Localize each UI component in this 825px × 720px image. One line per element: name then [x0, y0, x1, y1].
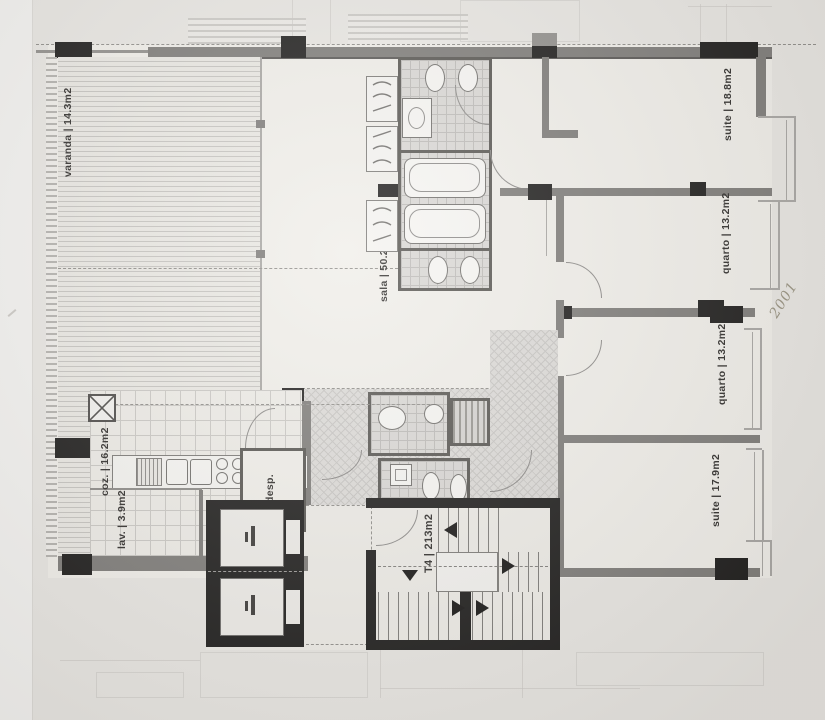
elevator-block [206, 500, 304, 647]
stair-direction-arrow [452, 600, 465, 616]
window-frame [758, 200, 796, 202]
wall-segment [756, 57, 766, 117]
stair-direction-arrow [402, 570, 418, 581]
wall-segment [542, 57, 549, 137]
glazing-line [260, 57, 262, 438]
sink-basin [166, 459, 188, 485]
toilet [422, 472, 440, 500]
stair-wall [550, 498, 560, 650]
ghost-line [726, 4, 727, 42]
bathtub [404, 204, 486, 244]
toilet [425, 64, 445, 92]
elevator-capacity-marks [251, 526, 255, 546]
ghost-line [522, 650, 523, 698]
window-frame [760, 330, 762, 428]
round-basin [424, 404, 444, 424]
stair-direction-arrow [502, 558, 515, 574]
wall-segment [542, 130, 578, 138]
hall-dash-line [306, 505, 370, 506]
stair-wall [366, 550, 376, 650]
bathtub [404, 158, 486, 198]
column [700, 42, 758, 58]
room-varanda [58, 57, 262, 438]
hanger-icon [367, 127, 397, 171]
column [528, 184, 552, 200]
wall-quarto2-suite [556, 435, 760, 443]
shaft-divider [208, 571, 302, 572]
window-frame [752, 332, 753, 428]
window-frame [746, 448, 762, 450]
hanger-icon [367, 201, 397, 251]
shower [450, 398, 490, 446]
room-label-quarto-2: quarto | 13.2m2 [714, 322, 730, 407]
washbasin [390, 464, 412, 486]
wardrobe [366, 76, 398, 122]
window-frame [754, 452, 755, 542]
window-frame [762, 542, 763, 576]
column [698, 300, 724, 317]
hanger-icon [367, 77, 397, 121]
window-frame [746, 540, 772, 542]
draining-board [136, 458, 162, 486]
column [690, 182, 706, 196]
wardrobe [366, 200, 398, 252]
column [715, 558, 748, 580]
basin-bowl [395, 469, 407, 481]
wall-segment [36, 50, 150, 53]
window-frame [744, 328, 762, 330]
ghost-structure [576, 652, 764, 686]
column [378, 184, 400, 197]
window-frame [786, 120, 787, 202]
sink-basin [190, 459, 212, 485]
window-frame [750, 288, 780, 290]
burner [216, 472, 228, 484]
room-varanda-wing [58, 458, 92, 556]
photo-margin-left [0, 0, 33, 720]
floorplan-photo: varanda | 14.3m2 sala | 50.2m2 suite | 1… [0, 0, 825, 720]
stair-landing [436, 552, 498, 592]
ceiling-dash-line [58, 268, 398, 269]
room-label-cozinha: coz. | 16.2m2 [97, 418, 113, 506]
room-label-quarto-1: quarto | 13.2m2 [718, 192, 734, 274]
window-frame [778, 202, 780, 290]
window-frame [770, 540, 772, 576]
elevator-door [286, 520, 300, 554]
window-frame [770, 204, 771, 290]
column [62, 554, 92, 575]
window-frame [794, 116, 796, 202]
wardrobe [366, 126, 398, 172]
ghost-line [330, 0, 331, 44]
ghost-line [380, 650, 381, 698]
property-line [36, 44, 816, 45]
wall-left-hatched [46, 57, 57, 557]
wall-segment [398, 248, 492, 251]
ghost-line [688, 6, 772, 7]
wall-segment [398, 150, 492, 153]
corridor-floor [490, 330, 558, 390]
bidet [460, 256, 480, 284]
elevator-capacity-marks [245, 532, 248, 542]
ghost-structure [96, 672, 184, 698]
stair-flight [378, 592, 458, 640]
wall-corridor [556, 188, 564, 262]
elevator-capacity-marks [251, 595, 255, 615]
elevator-capacity-marks [245, 601, 248, 611]
column [281, 36, 306, 58]
window-frame [744, 428, 762, 430]
elevator-car [220, 509, 284, 567]
thin-line [546, 196, 547, 256]
basin-bowl [408, 107, 425, 129]
elevator-car [220, 578, 284, 636]
tub-rim [409, 209, 480, 238]
ghost-line [380, 688, 640, 689]
stair-direction-arrow [444, 522, 457, 538]
room-label-lavandaria: lav. | 3.9m2 [114, 490, 130, 550]
shaft-x-icon [90, 396, 114, 420]
stair-dash-line [378, 566, 548, 567]
elevator-door [286, 590, 300, 624]
wall-segment [532, 33, 557, 47]
ghost-structure [348, 14, 468, 44]
hall-dash-line [306, 644, 368, 645]
ghost-line [60, 660, 200, 661]
ghost-structure [200, 652, 368, 698]
washbasin [402, 98, 432, 138]
window-frame [758, 116, 796, 118]
ghost-line [700, 4, 701, 42]
room-label-suite-bottom: suite | 17.9m2 [708, 450, 724, 530]
stair-wall [366, 498, 560, 508]
wall-segment [199, 490, 203, 556]
window-frame [762, 450, 764, 542]
toilet [378, 406, 406, 430]
room-label-suite-top: suite | 18.8m2 [720, 62, 736, 147]
tub-rim [409, 163, 480, 192]
mullion [256, 120, 265, 128]
ghost-structure [460, 0, 580, 42]
stair-direction-arrow [476, 600, 489, 616]
ceiling-dash-line [90, 404, 430, 405]
burner [216, 458, 228, 470]
toilet [428, 256, 448, 284]
column [55, 42, 92, 58]
room-label-varanda: varanda | 14.3m2 [60, 75, 76, 190]
mullion [256, 250, 265, 258]
